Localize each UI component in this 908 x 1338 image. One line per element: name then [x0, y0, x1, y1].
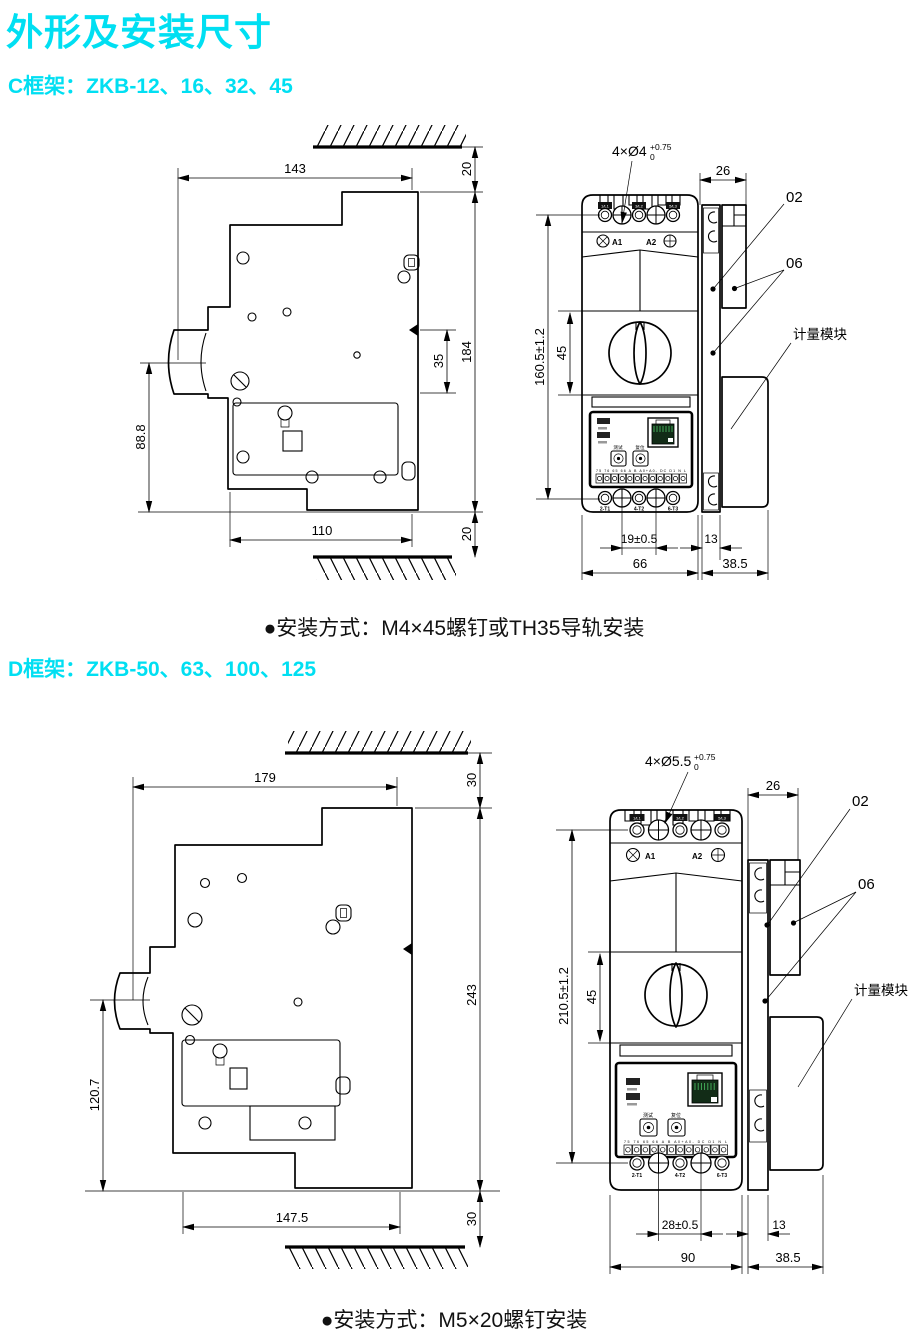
- d-rj45-port: [688, 1073, 722, 1106]
- d-accessory-module: [770, 860, 800, 975]
- c-label-L2: 3/L2: [635, 204, 644, 209]
- d-hole-tol-upper: +0.75: [694, 752, 716, 762]
- c-reset-button: [633, 451, 648, 466]
- d-wall-hatch-top: [288, 731, 471, 752]
- c-dim-gap-bottom: 20: [459, 527, 474, 541]
- c-side-outline: [169, 192, 419, 510]
- d-dim-mount-height: 210.5±1.2: [556, 967, 571, 1025]
- section-d-mounting-note: ●安装方式：M5×20螺钉安装: [0, 1304, 908, 1334]
- d-callout-06: 06: [858, 876, 875, 893]
- d-side-view: 179 30 243 30 120.7 147.5: [85, 731, 500, 1269]
- c-hole-tol-lower: 0: [650, 152, 655, 162]
- c-dim-body-width: 66: [633, 556, 647, 571]
- c-dim-height-lower: 88.8: [133, 424, 148, 449]
- c-label-a2: A2: [646, 238, 657, 247]
- c-hole-callout: 4×Ø4: [612, 143, 647, 159]
- d-side-dimensions: 179 30 243 30 120.7 147.5: [87, 753, 492, 1247]
- c-label-L3: 5/L3: [669, 204, 678, 209]
- c-rotary-handle: [609, 322, 671, 384]
- c-metering-module: [722, 377, 768, 507]
- c-dim-module-width: 38.5: [722, 556, 747, 571]
- c-terminal-strip-labels: 75 76 65 66 A B A0+A0- DC D1 N L: [596, 469, 686, 473]
- d-label-t1: 2-T1: [632, 1173, 643, 1179]
- c-dim-width-top: 143: [284, 161, 306, 176]
- d-dim-width-top: 179: [254, 770, 276, 785]
- c-test-button-label: 测试: [613, 444, 623, 451]
- c-dim-rail-width: 13: [704, 532, 718, 546]
- d-dim-rail-width: 13: [772, 1218, 786, 1232]
- d-test-button-label: 测试: [643, 1112, 653, 1119]
- d-metering-label: 计量模块: [854, 983, 908, 998]
- d-dim-hole-span: 28±0.5: [662, 1218, 699, 1232]
- d-callout-02: 02: [852, 793, 869, 810]
- c-dim-width-bottom: 110: [312, 523, 333, 538]
- d-label-L1: 1/L1: [633, 816, 642, 821]
- c-dim-hole-span: 19±0.5: [621, 532, 658, 546]
- c-dim-gap-top: 20: [459, 162, 474, 176]
- d-reset-button: [668, 1119, 685, 1136]
- c-frame-drawing: 143 20 184 20 35 88.8 110 1/L1 3/L2 5/L3: [0, 105, 908, 605]
- d-frame-drawing: 179 30 243 30 120.7 147.5 1/L1 3/L2 5/L3…: [0, 695, 908, 1295]
- d-usb-port-2: [626, 1093, 640, 1100]
- d-front-view: 1/L1 3/L2 5/L3 A1 A2 测试 复位 75 76 65 66 A…: [556, 752, 908, 1274]
- page-title: 外形及安装尺寸: [6, 2, 272, 56]
- c-dim-mount-height: 160.5±1.2: [532, 328, 547, 386]
- d-rotary-handle: [645, 964, 707, 1026]
- d-wall-hatch-bottom: [288, 1248, 468, 1269]
- d-terminal-strip: [624, 1145, 728, 1155]
- d-dim-handle-height: 45: [584, 990, 599, 1004]
- d-terminal-strip-labels: 75 76 65 66 A B A0+A0- DC D1 N L: [624, 1140, 727, 1144]
- d-hole-tol-lower: 0: [694, 762, 699, 772]
- c-wall-hatch-top: [316, 125, 466, 147]
- c-terminal-strip: [596, 474, 687, 483]
- d-side-cover-panel: [182, 1040, 340, 1106]
- c-usb-port-1: [597, 418, 610, 424]
- c-dim-rail-notch: 35: [431, 354, 446, 368]
- c-side-view: 143 20 184 20 35 88.8 110: [133, 125, 483, 580]
- c-side-dimensions: 143 20 184 20 35 88.8 110: [133, 147, 483, 557]
- d-reset-button-label: 复位: [671, 1112, 681, 1119]
- c-wall-hatch-bottom: [316, 558, 456, 580]
- c-metering-label: 计量模块: [793, 327, 847, 342]
- c-callouts: 4×Ø4 +0.75 0 02 06 计量模块: [612, 142, 847, 429]
- c-label-t1: 2-T1: [600, 507, 611, 513]
- c-dim-rail-offset: 26: [716, 163, 730, 178]
- c-dim-height-total: 184: [459, 341, 474, 363]
- d-callouts: 4×Ø5.5 +0.75 0 02 06 计量模块: [645, 752, 908, 1087]
- d-label-L3: 5/L3: [718, 816, 727, 821]
- d-dim-height-total: 243: [464, 984, 479, 1006]
- d-dim-height-lower: 120.7: [87, 1079, 102, 1112]
- c-callout-02: 02: [786, 189, 803, 206]
- d-metering-module: [770, 1017, 823, 1170]
- d-label-t3: 6-T3: [717, 1173, 728, 1179]
- section-c-mounting-note: ●安装方式：M4×45螺钉或TH35导轨安装: [0, 612, 908, 642]
- d-front-outline: [610, 810, 742, 1190]
- c-dim-handle-height: 45: [554, 346, 569, 360]
- section-c-heading: C框架：ZKB-12、16、32、45: [8, 70, 293, 100]
- c-label-t2: 4-T2: [634, 507, 645, 513]
- c-rj45-port: [648, 418, 678, 447]
- d-test-button: [640, 1119, 657, 1136]
- section-d-heading: D框架：ZKB-50、63、100、125: [8, 653, 316, 683]
- d-side-outline: [115, 808, 413, 1188]
- c-label-a1: A1: [612, 238, 623, 247]
- c-reset-button-label: 复位: [635, 444, 645, 451]
- d-hole-callout: 4×Ø5.5: [645, 753, 692, 769]
- d-label-a2: A2: [692, 852, 703, 861]
- c-accessory-module: [722, 205, 746, 308]
- d-label-L2: 3/L2: [676, 816, 685, 821]
- c-side-cover-panel: [233, 403, 398, 475]
- c-test-button: [611, 451, 626, 466]
- d-din-rail-strip: [748, 860, 768, 1190]
- d-front-dimensions: 210.5±1.2 45 26 28±0.5 13 90 38.5: [556, 778, 823, 1274]
- d-usb-port-1: [626, 1078, 640, 1085]
- c-front-outline: [582, 195, 698, 512]
- c-label-t3: 6-T3: [668, 507, 679, 513]
- c-usb-port-2: [597, 432, 610, 438]
- d-dim-module-width: 38.5: [775, 1250, 800, 1265]
- c-callout-06: 06: [786, 255, 803, 272]
- c-front-view: 1/L1 3/L2 5/L3 A1 A2 测试 复位 75 76 65 66 A…: [532, 142, 847, 580]
- d-dim-rail-offset: 26: [766, 778, 780, 793]
- d-dim-width-bottom: 147.5: [276, 1210, 309, 1225]
- c-hole-tol-upper: +0.75: [650, 142, 672, 152]
- d-label-a1: A1: [645, 852, 656, 861]
- d-dim-body-width: 90: [681, 1250, 695, 1265]
- d-label-t2: 4-T2: [675, 1173, 686, 1179]
- c-din-rail-strip: [702, 205, 720, 512]
- c-label-L1: 1/L1: [601, 204, 610, 209]
- d-dim-gap-top: 30: [464, 773, 479, 787]
- d-dim-gap-bottom: 30: [464, 1212, 479, 1226]
